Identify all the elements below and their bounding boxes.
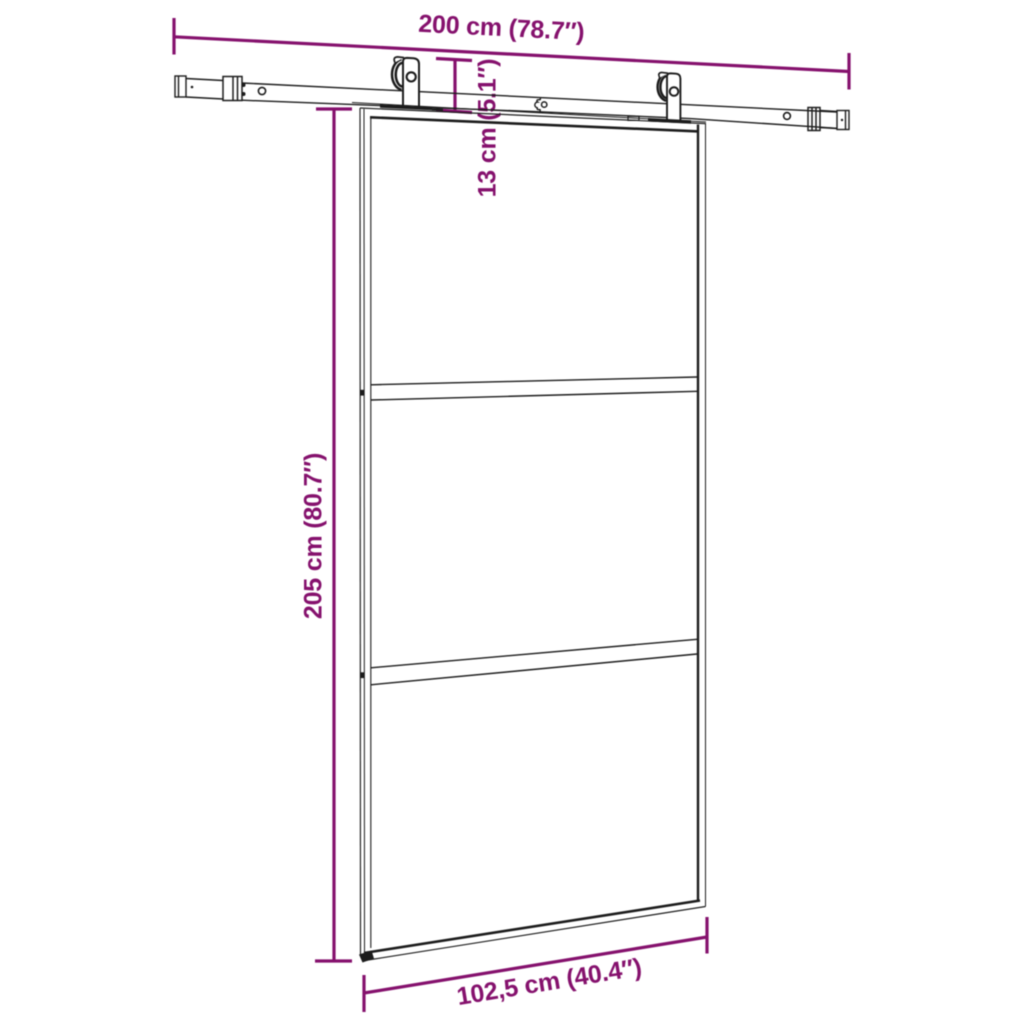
svg-text:205 cm (80.7″): 205 cm (80.7″) [300, 453, 328, 619]
svg-text:13 cm (5.1″): 13 cm (5.1″) [474, 59, 502, 198]
